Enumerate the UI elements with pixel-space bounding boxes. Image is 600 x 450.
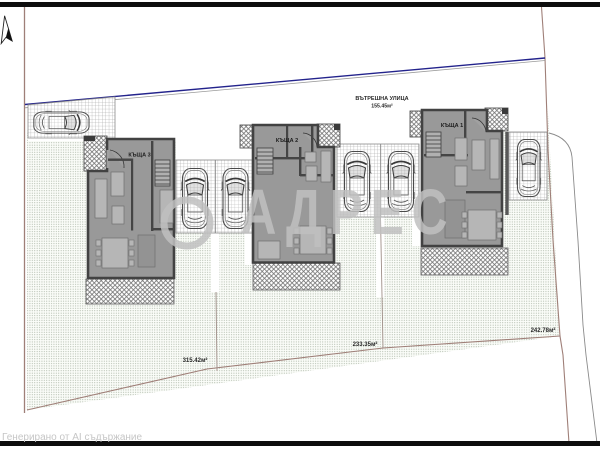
svg-text:КЪЩА 2: КЪЩА 2 — [276, 138, 298, 144]
svg-text:233.35м²: 233.35м² — [353, 341, 378, 348]
svg-text:КЪЩА 3: КЪЩА 3 — [128, 153, 150, 159]
svg-text:242.78м²: 242.78м² — [531, 327, 556, 334]
svg-text:155.45м²: 155.45м² — [371, 104, 393, 110]
svg-text:КЪЩА 1: КЪЩА 1 — [441, 123, 463, 129]
svg-text:Генерирано от AI съдържание: Генерирано от AI съдържание — [2, 432, 142, 443]
svg-text:АДРЕС: АДРЕС — [240, 177, 455, 248]
svg-text:315.42м²: 315.42м² — [183, 357, 208, 364]
svg-text:ВЪТРЕШНА УЛИЦА: ВЪТРЕШНА УЛИЦА — [355, 96, 408, 102]
